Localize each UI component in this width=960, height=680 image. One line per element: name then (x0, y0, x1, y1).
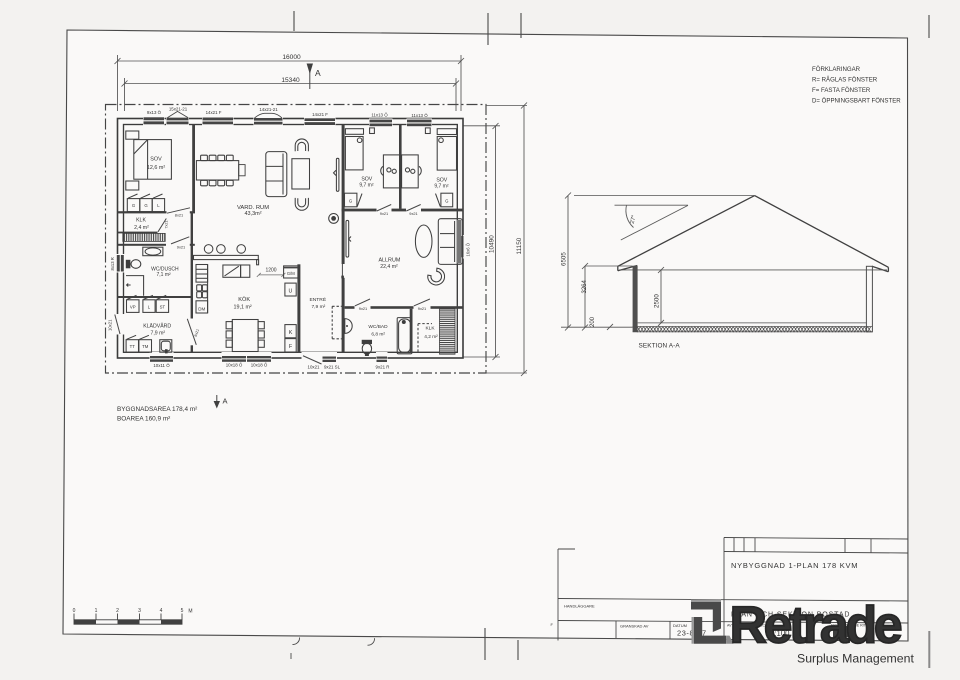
svg-text:KÖK: KÖK (238, 296, 250, 303)
svg-text:R= RÅGLAS FÖNSTER: R= RÅGLAS FÖNSTER (812, 77, 878, 84)
svg-text:NYBYGGNAD 1-PLAN 178 KVM: NYBYGGNAD 1-PLAN 178 KVM (731, 561, 858, 570)
svg-text:11x13 Ö: 11x13 Ö (371, 112, 388, 117)
svg-text:GRANSKAD AV: GRANSKAD AV (620, 624, 649, 629)
svg-text:14x21 F: 14x21 F (206, 110, 222, 115)
svg-text:DM: DM (198, 306, 205, 311)
svg-text:SOV: SOV (436, 177, 447, 183)
svg-text:43,3m²: 43,3m² (244, 211, 261, 217)
svg-text:14x21-21: 14x21-21 (259, 107, 278, 112)
svg-text:19,1 m²: 19,1 m² (233, 304, 251, 310)
svg-text:2,4 m²: 2,4 m² (134, 225, 149, 231)
svg-text:7,9 m²: 7,9 m² (311, 304, 325, 310)
svg-text:11150: 11150 (516, 237, 523, 254)
svg-text:0: 0 (73, 608, 76, 614)
svg-text:Retrade: Retrade (730, 597, 902, 655)
svg-text:A: A (223, 397, 228, 406)
svg-text:9x21: 9x21 (380, 211, 388, 216)
svg-text:10x11 Ö: 10x11 Ö (153, 363, 170, 368)
svg-text:D= ÖPPNINGSBART FÖNSTER: D= ÖPPNINGSBART FÖNSTER (812, 98, 901, 105)
svg-text:9,7 m²: 9,7 m² (434, 184, 449, 190)
svg-text:10490: 10490 (489, 235, 496, 253)
svg-text:10x21: 10x21 (308, 364, 321, 369)
svg-text:9x21 R: 9x21 R (376, 364, 390, 369)
svg-text:2500: 2500 (654, 294, 661, 308)
svg-text:VP: VP (130, 304, 136, 309)
svg-text:1: 1 (95, 608, 98, 614)
svg-text:DATUM: DATUM (673, 623, 687, 628)
svg-text:6,8 m²: 6,8 m² (371, 332, 385, 338)
svg-text:7,9 m²: 7,9 m² (150, 331, 165, 337)
svg-text:WC/BAD: WC/BAD (368, 324, 388, 330)
svg-text:9,7 m²: 9,7 m² (359, 183, 374, 189)
svg-text:ALLRUM: ALLRUM (378, 257, 400, 263)
svg-text:ST: ST (160, 304, 166, 309)
svg-text:15x21-21: 15x21-21 (169, 107, 188, 112)
svg-text:6505: 6505 (561, 252, 568, 266)
svg-text:9x13 Ö: 9x13 Ö (147, 110, 162, 115)
svg-text:9x21 SL: 9x21 SL (324, 364, 341, 369)
svg-text:SEKTION A-A: SEKTION A-A (639, 343, 681, 350)
svg-text:15340: 15340 (281, 77, 300, 84)
svg-text:SOV: SOV (150, 157, 162, 163)
svg-text:HANDLÄGGARE: HANDLÄGGARE (564, 604, 595, 609)
svg-text:4: 4 (160, 608, 163, 614)
svg-text:G/M: G/M (287, 271, 295, 276)
svg-text:16x6 Ö: 16x6 Ö (466, 242, 471, 256)
svg-text:KLK: KLK (425, 326, 435, 332)
svg-text:7,1 m²: 7,1 m² (157, 272, 172, 278)
svg-text:KLÄDVÅRD: KLÄDVÅRD (143, 322, 171, 329)
svg-text:5: 5 (181, 608, 184, 614)
svg-text:9x21: 9x21 (418, 306, 426, 311)
svg-text:3: 3 (138, 608, 141, 614)
svg-text:10x18 Ö: 10x18 Ö (251, 362, 268, 367)
svg-text:TT: TT (130, 344, 136, 349)
svg-text:SOV: SOV (361, 176, 372, 182)
svg-text:FÖRKLARINGAR: FÖRKLARINGAR (812, 66, 861, 73)
svg-text:A: A (315, 68, 321, 78)
svg-text:BOAREA 160,9 m²: BOAREA 160,9 m² (117, 416, 170, 423)
svg-text:10x21: 10x21 (108, 319, 113, 331)
svg-text:1200: 1200 (265, 268, 276, 274)
svg-text:10x18 Ö: 10x18 Ö (226, 362, 243, 367)
svg-text:22,4 m²: 22,4 m² (380, 264, 398, 270)
svg-text:11x13 Ö: 11x13 Ö (411, 113, 428, 118)
svg-text:9x21: 9x21 (409, 211, 417, 216)
svg-text:3264: 3264 (582, 279, 588, 293)
svg-text:Surplus Management: Surplus Management (797, 652, 914, 666)
svg-text:4,2 m²: 4,2 m² (424, 334, 438, 340)
svg-text:8x21: 8x21 (175, 213, 183, 218)
svg-text:KLK: KLK (136, 218, 146, 224)
svg-text:12,6 m²: 12,6 m² (147, 165, 165, 171)
svg-text:16000: 16000 (282, 54, 301, 61)
svg-text:K: K (289, 330, 293, 336)
svg-text:8x13 R: 8x13 R (110, 257, 115, 270)
svg-text:200: 200 (590, 316, 596, 327)
svg-text:14x21 F: 14x21 F (312, 112, 328, 117)
svg-text:M: M (188, 609, 192, 615)
svg-text:7x21: 7x21 (165, 221, 169, 229)
svg-text:9x21: 9x21 (359, 306, 367, 311)
svg-text:BYGGNADSAREA 178,4 m²: BYGGNADSAREA 178,4 m² (117, 406, 197, 413)
svg-text:VARD. RUM: VARD. RUM (237, 205, 269, 211)
svg-text:ENTRÉ: ENTRÉ (310, 296, 327, 303)
svg-text:F= FASTA FÖNSTER: F= FASTA FÖNSTER (812, 87, 871, 94)
svg-text:TM: TM (142, 344, 149, 349)
svg-text:9x21: 9x21 (177, 245, 185, 250)
svg-text:U: U (289, 288, 293, 294)
svg-text:2: 2 (116, 608, 119, 614)
